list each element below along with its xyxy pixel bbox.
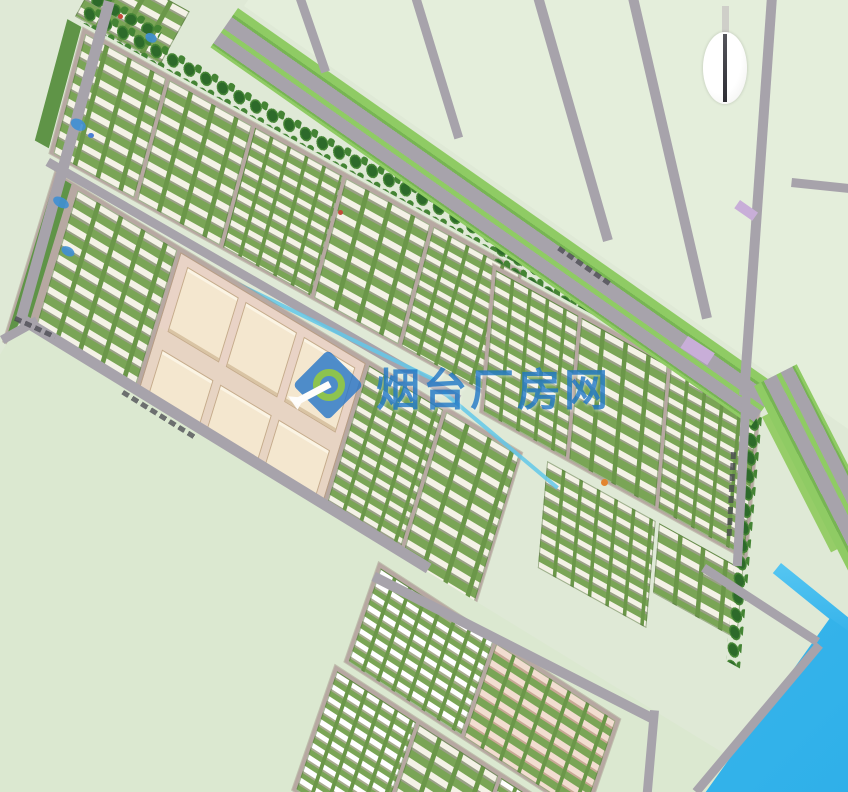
orange-marker (601, 479, 608, 486)
blue-roof-accent (88, 133, 94, 138)
campus-building (167, 267, 238, 363)
campus-building (226, 302, 297, 398)
watermark-logo-icon (292, 349, 366, 423)
site-plan-map: 烟台厂房网 (0, 0, 848, 792)
red-roof-accent (118, 14, 123, 19)
north-arrow-icon (700, 6, 752, 106)
compass-needle (723, 34, 727, 102)
watermark-text: 烟台厂房网 (376, 354, 611, 418)
red-roof-accent (338, 210, 343, 215)
watermark: 烟台厂房网 (292, 344, 592, 428)
